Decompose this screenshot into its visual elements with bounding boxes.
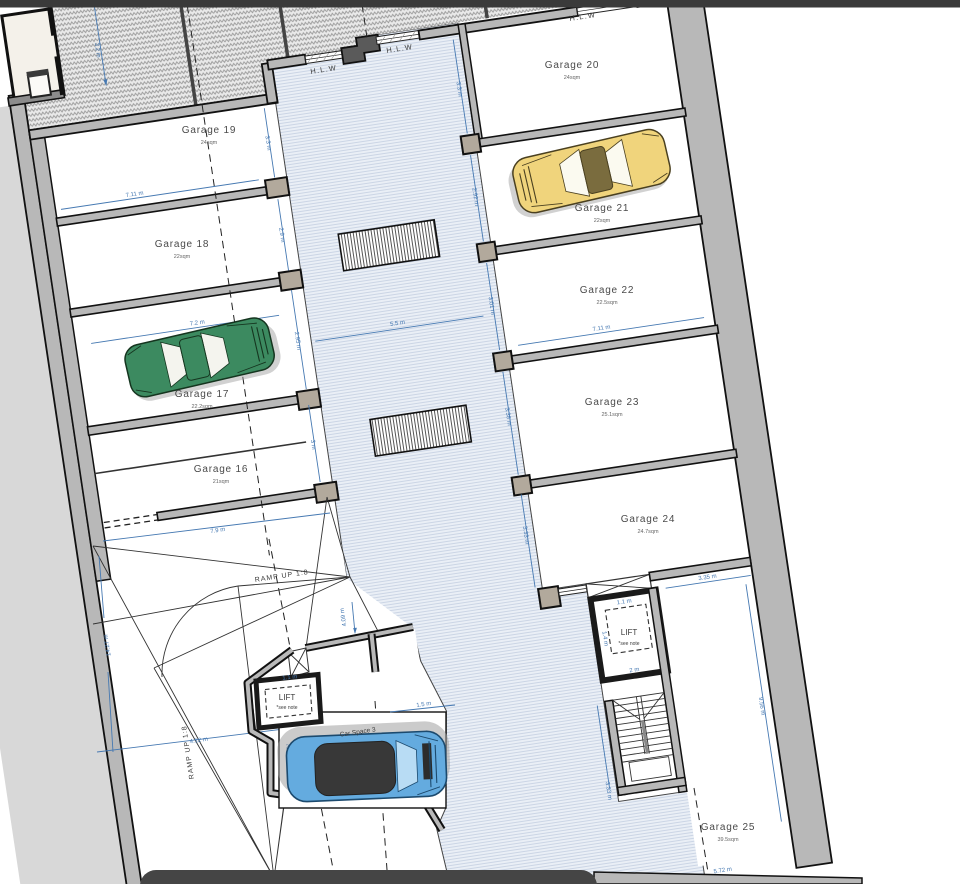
svg-text:Garage 23: Garage 23: [585, 397, 639, 408]
svg-text:Garage 16: Garage 16: [194, 464, 248, 475]
svg-text:25.1sqm: 25.1sqm: [601, 412, 623, 418]
svg-text:Garage 24: Garage 24: [621, 514, 675, 525]
svg-text:2.9 m: 2.9 m: [277, 227, 285, 243]
svg-text:3 m: 3 m: [309, 439, 316, 450]
svg-text:LIFT: LIFT: [621, 628, 638, 637]
svg-text:2.95 m: 2.95 m: [293, 331, 302, 350]
svg-text:Garage 17: Garage 17: [175, 389, 229, 400]
svg-text:3.3 m: 3.3 m: [263, 135, 271, 151]
svg-text:22sqm: 22sqm: [174, 254, 191, 260]
svg-text:Garage 20: Garage 20: [545, 60, 599, 71]
svg-text:Garage 25: Garage 25: [701, 822, 755, 833]
svg-text:5.72 m: 5.72 m: [713, 867, 732, 876]
svg-text:24.7sqm: 24.7sqm: [637, 529, 659, 535]
svg-text:21sqm: 21sqm: [213, 479, 230, 485]
svg-text:Garage 21: Garage 21: [575, 203, 629, 214]
svg-text:24sqm: 24sqm: [564, 75, 581, 81]
svg-text:24sqm: 24sqm: [201, 140, 218, 146]
svg-text:22.5sqm: 22.5sqm: [596, 300, 618, 306]
svg-text:*see note: *see note: [618, 641, 639, 647]
svg-text:Garage 19: Garage 19: [182, 125, 236, 136]
svg-text:Garage 18: Garage 18: [155, 239, 209, 250]
svg-text:*see note: *see note: [276, 705, 297, 711]
svg-text:Garage 22: Garage 22: [580, 285, 634, 296]
svg-text:22sqm: 22sqm: [594, 218, 611, 224]
svg-text:22.2sqm: 22.2sqm: [191, 404, 213, 410]
svg-text:LIFT: LIFT: [279, 693, 296, 702]
svg-text:39.5sqm: 39.5sqm: [717, 837, 739, 843]
